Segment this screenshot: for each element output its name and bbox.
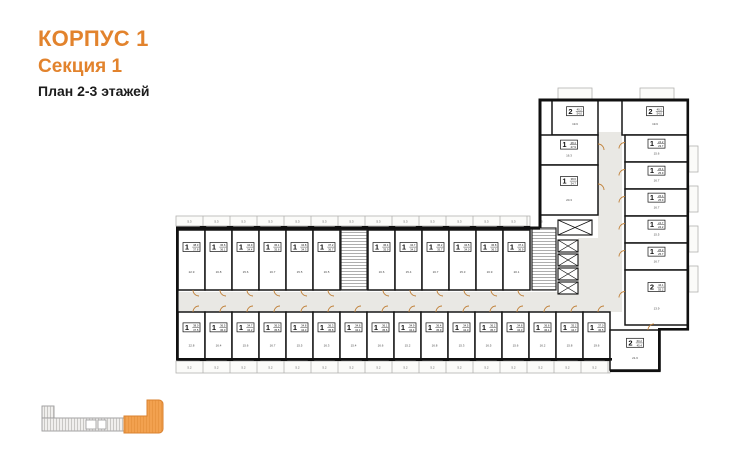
unit-rooms-count: 1 [456, 243, 460, 252]
apartment-unit: 124.724.215.5 [619, 216, 688, 243]
unit-rooms-count: 2 [648, 107, 652, 116]
unit-area-total: 26.2 [658, 248, 664, 252]
room-area: 16.7 [270, 270, 276, 274]
unit-area-living: 23.7 [658, 144, 664, 148]
room-area: 16.4 [216, 344, 222, 348]
room-area: 15.5 [297, 270, 303, 274]
apartment-unit: 136.435.916.6 [368, 230, 395, 296]
locator-core [86, 420, 96, 429]
locator-miniplan [28, 396, 178, 458]
room-area: 15.3 [459, 344, 465, 348]
room-area: 16.5 [486, 344, 492, 348]
unit-rooms-count: 1 [650, 139, 654, 148]
room-area: 13.9 [654, 307, 660, 311]
unit-area-total: 36.2 [490, 324, 496, 328]
unit-area-total: 34.7 [410, 243, 416, 247]
unit-area-living: 24.2 [658, 225, 664, 229]
room-area: 15.6 [654, 151, 660, 155]
balcony-area: 5.2 [430, 365, 435, 369]
apartment-unit: 128.427.916.3 [540, 135, 604, 165]
apartment-unit: 134.734.215.4 [395, 230, 422, 296]
balcony-area: 5.2 [214, 365, 219, 369]
unit-rooms-count: 1 [293, 323, 297, 332]
unit-rooms-count: 1 [483, 243, 487, 252]
balcony-area: 5.2 [484, 365, 489, 369]
stairwell-icon [532, 228, 556, 290]
unit-area-total: 34.8 [301, 324, 307, 328]
apartment-unit: 136.335.816.3 [313, 306, 340, 360]
room-area: 15.6 [513, 344, 519, 348]
room-area: 16.2 [540, 344, 546, 348]
room-area: 22.9 [189, 270, 195, 274]
unit-area-total: 36.6 [544, 324, 550, 328]
unit-rooms-count: 1 [239, 243, 243, 252]
unit-area-living: 36.1 [220, 248, 226, 252]
unit-rooms-count: 1 [562, 177, 566, 186]
room-area: 16.8 [216, 270, 222, 274]
apartment-unit: 134.534.015.3 [449, 230, 476, 296]
apartment-unit: 134.734.215.6 [232, 306, 259, 360]
room-area: 15.4 [351, 344, 357, 348]
balcony-area: 5.3 [403, 219, 408, 223]
room-area: 15.3 [460, 270, 466, 274]
unit-area-living: 25.9 [658, 198, 664, 202]
room-area: 16.9 [487, 270, 493, 274]
room-area: 16.6 [378, 344, 384, 348]
unit-area-total: 28.4 [571, 141, 577, 145]
unit-area-living: 35.7 [490, 328, 496, 332]
unit-area-living: 37.5 [193, 328, 199, 332]
room-area: 20.1 [514, 270, 520, 274]
apartment-unit: 136.135.616.7 [259, 230, 286, 296]
unit-area-total: 36.6 [220, 243, 226, 247]
room-area: 16.7 [433, 270, 439, 274]
apartment-unit: 137.236.716.5 [313, 230, 340, 296]
unit-area-total: 34.8 [301, 243, 307, 247]
unit-rooms-count: 1 [536, 323, 540, 332]
unit-rooms-count: 1 [375, 243, 379, 252]
unit-area-total: 36.0 [274, 324, 280, 328]
room-area: 15.5 [297, 344, 303, 348]
unit-area-total: 34.8 [517, 324, 523, 328]
unit-area-living: 36.9 [518, 248, 524, 252]
room-area: 16.7 [654, 205, 660, 209]
apartment-unit: 126.425.916.7 [619, 162, 688, 189]
unit-rooms-count: 2 [628, 338, 632, 347]
unit-area-living: 27.9 [571, 145, 577, 149]
unit-area-living: 36.3 [491, 248, 497, 252]
apartment-unit: 134.534.015.3 [448, 306, 475, 360]
unit-rooms-count: 1 [455, 323, 459, 332]
unit-rooms-count: 1 [428, 323, 432, 332]
balcony-area: 5.2 [565, 365, 570, 369]
unit-area-total: 24.2 [658, 140, 664, 144]
balcony-area: 5.2 [322, 365, 327, 369]
unit-area-living: 34.0 [464, 248, 470, 252]
apartment-unit: 124.223.715.6 [619, 135, 688, 162]
balcony-area: 5.3 [430, 219, 435, 223]
unit-rooms-count: 1 [650, 247, 654, 256]
unit-area-living: 45.4 [637, 343, 643, 347]
unit-area-living: 35.8 [328, 328, 334, 332]
unit-area-living: 35.5 [274, 328, 280, 332]
unit-rooms-count: 1 [401, 323, 405, 332]
unit-area-total: 34.6 [355, 324, 361, 328]
apartment-unit: 138.337.822.9 [178, 230, 205, 296]
main-corridor [179, 292, 622, 312]
unit-area-living: 34.1 [355, 328, 361, 332]
balcony [689, 146, 698, 172]
unit-area-total: 35.2 [571, 324, 577, 328]
unit-area-living: 36.0 [220, 328, 226, 332]
apartment-unit: 136.636.116.2 [529, 306, 556, 360]
room-area: 16.7 [270, 344, 276, 348]
balcony [640, 88, 674, 99]
unit-area-living: 36.5 [598, 328, 604, 332]
balcony-area: 5.3 [295, 219, 300, 223]
unit-rooms-count: 1 [650, 166, 654, 175]
unit-rooms-count: 1 [185, 323, 189, 332]
unit-rooms-count: 1 [374, 323, 378, 332]
apartment-unit: 136.636.116.8 [205, 230, 232, 296]
locator-other-sections [42, 406, 124, 431]
unit-area-total: 36.1 [274, 243, 280, 247]
unit-area-total: 34.5 [463, 324, 469, 328]
unit-area-total: 34.9 [247, 243, 253, 247]
apartment-unit: 260.245.421.6 [610, 324, 660, 370]
room-area: 16.3 [324, 344, 330, 348]
apartment-unit: 138.634.720.3 [540, 165, 604, 215]
unit-area-living: 34.2 [410, 248, 416, 252]
unit-area-total: 38.3 [193, 243, 199, 247]
room-area: 16.7 [654, 178, 660, 182]
balcony-area: 5.3 [268, 219, 273, 223]
unit-area-total: 26.4 [658, 167, 664, 171]
unit-rooms-count: 2 [568, 107, 572, 116]
apartment-unit: 136.836.316.9 [476, 230, 503, 296]
unit-area-living: 34.3 [517, 328, 523, 332]
unit-area-living: 35.7 [437, 248, 443, 252]
unit-area-total: 36.4 [383, 243, 389, 247]
room-area: 15.2 [405, 344, 411, 348]
unit-rooms-count: 1 [650, 220, 654, 229]
lift-lobby [578, 238, 600, 292]
room-area: 15.6 [243, 270, 249, 274]
unit-area-living: 34.0 [463, 328, 469, 332]
unit-area-total: 34.9 [409, 324, 415, 328]
unit-area-living: 54.0 [657, 112, 663, 116]
wing-corridor [598, 132, 622, 312]
apartment-unit: 136.135.616.6 [367, 306, 394, 360]
unit-rooms-count: 1 [212, 243, 216, 252]
apartment-unit: 136.035.516.7 [259, 306, 286, 360]
unit-area-total: 36.2 [437, 243, 443, 247]
unit-area-total: 37.0 [598, 324, 604, 328]
unit-area-total: 36.1 [382, 324, 388, 328]
apartment-unit: 134.934.415.2 [394, 306, 421, 360]
unit-area-living: 54.0 [577, 112, 583, 116]
balcony-area: 5.3 [484, 219, 489, 223]
unit-rooms-count: 1 [266, 323, 270, 332]
balcony [689, 266, 698, 292]
unit-area-living: 35.6 [274, 248, 280, 252]
unit-area-total: 34.7 [247, 324, 253, 328]
unit-area-total: 60.2 [637, 339, 643, 343]
balcony-area: 5.2 [241, 365, 246, 369]
balcony-area: 5.2 [376, 365, 381, 369]
unit-area-living: 34.3 [301, 328, 307, 332]
room-area: 16.5 [324, 270, 330, 274]
unit-rooms-count: 1 [563, 323, 567, 332]
room-area: 16.7 [654, 259, 660, 263]
unit-area-total: 40.2 [657, 107, 663, 111]
unit-area-living: 34.7 [571, 328, 577, 332]
unit-area-total: 24.7 [658, 221, 664, 225]
unit-area-total: 36.5 [220, 324, 226, 328]
apartment-unit: 244.155.213.9 [619, 270, 688, 325]
apartment-unit: 136.235.716.7 [422, 230, 449, 296]
unit-area-total: 37.4 [518, 243, 524, 247]
balcony [558, 88, 592, 99]
apartment-unit: 135.234.715.8 [556, 306, 583, 360]
balcony-area: 5.2 [268, 365, 273, 369]
unit-rooms-count: 1 [185, 243, 189, 252]
unit-area-total: 36.3 [328, 324, 334, 328]
unit-area-living: 25.7 [658, 252, 664, 256]
unit-rooms-count: 1 [239, 323, 243, 332]
unit-rooms-count: 1 [212, 323, 216, 332]
apartment-unit: 136.435.916.8 [421, 306, 448, 360]
balcony [689, 226, 698, 252]
room-area: 16.6 [379, 270, 385, 274]
balcony-area: 5.2 [403, 365, 408, 369]
room-area: 22.8 [189, 344, 195, 348]
balcony-area: 5.3 [187, 219, 192, 223]
room-area: 15.8 [567, 344, 573, 348]
unit-rooms-count: 1 [266, 243, 270, 252]
unit-rooms-count: 1 [429, 243, 433, 252]
unit-rooms-count: 1 [650, 193, 654, 202]
balcony-area: 5.3 [241, 219, 246, 223]
unit-area-total: 40.2 [577, 107, 583, 111]
locator-current-section [124, 400, 163, 433]
unit-rooms-count: 1 [320, 323, 324, 332]
unit-area-living: 55.2 [658, 288, 664, 292]
unit-rooms-count: 1 [320, 243, 324, 252]
unit-rooms-count: 1 [482, 323, 486, 332]
balcony-area: 5.2 [349, 365, 354, 369]
room-area: 19.6 [594, 344, 600, 348]
balcony-area: 5.3 [349, 219, 354, 223]
apartment-unit: 138.037.522.8 [178, 306, 205, 360]
unit-rooms-count: 1 [293, 243, 297, 252]
unit-area-living: 34.2 [247, 328, 253, 332]
unit-rooms-count: 1 [590, 323, 594, 332]
apartment-unit: 134.834.315.6 [502, 306, 529, 360]
unit-area-living: 25.9 [658, 171, 664, 175]
room-area: 20.3 [566, 198, 572, 202]
apartment-unit: 134.834.315.5 [286, 230, 313, 296]
balcony-area: 5.3 [322, 219, 327, 223]
unit-area-total: 34.5 [464, 243, 470, 247]
balcony-area: 5.2 [187, 365, 192, 369]
unit-area-total: 38.6 [571, 177, 577, 181]
unit-area-total: 44.1 [658, 283, 664, 287]
unit-rooms-count: 1 [510, 243, 514, 252]
unit-rooms-count: 1 [402, 243, 406, 252]
unit-rooms-count: 1 [562, 140, 566, 149]
unit-area-total: 38.0 [193, 324, 199, 328]
stairwell-icon [341, 230, 367, 290]
unit-area-living: 36.7 [328, 248, 334, 252]
unit-area-living: 37.8 [193, 248, 199, 252]
apartment-unit: 134.934.415.6 [232, 230, 259, 296]
unit-area-total: 36.8 [491, 243, 497, 247]
room-area: 15.6 [243, 344, 249, 348]
balcony-area: 5.2 [592, 365, 597, 369]
balcony-area: 5.2 [538, 365, 543, 369]
unit-area-total: 36.4 [436, 324, 442, 328]
unit-area-living: 35.9 [436, 328, 442, 332]
apartment-unit: 126.425.916.7 [619, 189, 688, 216]
unit-area-living: 35.6 [382, 328, 388, 332]
room-area: 15.4 [406, 270, 412, 274]
apartment-unit: 137.036.519.6 [583, 306, 610, 360]
unit-area-living: 34.4 [247, 248, 253, 252]
unit-area-total: 26.4 [658, 194, 664, 198]
balcony-area: 5.3 [511, 219, 516, 223]
apartment-unit: 134.634.115.4 [340, 306, 367, 360]
apartment-unit: 136.235.716.5 [475, 306, 502, 360]
room-area: 16.3 [566, 154, 572, 158]
floorplan-page: КОРПУС 1 Секция 1 План 2-3 этажей [0, 0, 740, 472]
unit-area-living: 34.4 [409, 328, 415, 332]
room-area: 16.8 [432, 344, 438, 348]
room-area: 15.5 [654, 232, 660, 236]
balcony-area: 5.3 [376, 219, 381, 223]
unit-area-living: 34.3 [301, 248, 307, 252]
unit-area-total: 37.2 [328, 243, 334, 247]
unit-rooms-count: 1 [509, 323, 513, 332]
balcony-area: 5.2 [511, 365, 516, 369]
apartment-unit: 137.436.920.1 [503, 230, 530, 296]
unit-area-living: 34.7 [571, 182, 577, 186]
balcony [689, 186, 698, 212]
balcony-area: 5.3 [457, 219, 462, 223]
unit-area-living: 36.1 [544, 328, 550, 332]
balcony-area: 5.2 [295, 365, 300, 369]
unit-rooms-count: 1 [347, 323, 351, 332]
room-area: 19.6 [572, 122, 578, 126]
apartment-unit: 136.536.016.4 [205, 306, 232, 360]
unit-area-living: 35.9 [383, 248, 389, 252]
balcony-area: 5.3 [214, 219, 219, 223]
apartment-unit: 134.834.315.5 [286, 306, 313, 360]
balcony-area: 5.2 [457, 365, 462, 369]
locator-core [98, 420, 106, 429]
room-area: 21.6 [632, 356, 638, 360]
room-area: 19.6 [652, 122, 658, 126]
unit-rooms-count: 2 [650, 283, 654, 292]
apartment-unit: 126.225.716.7 [619, 243, 688, 270]
